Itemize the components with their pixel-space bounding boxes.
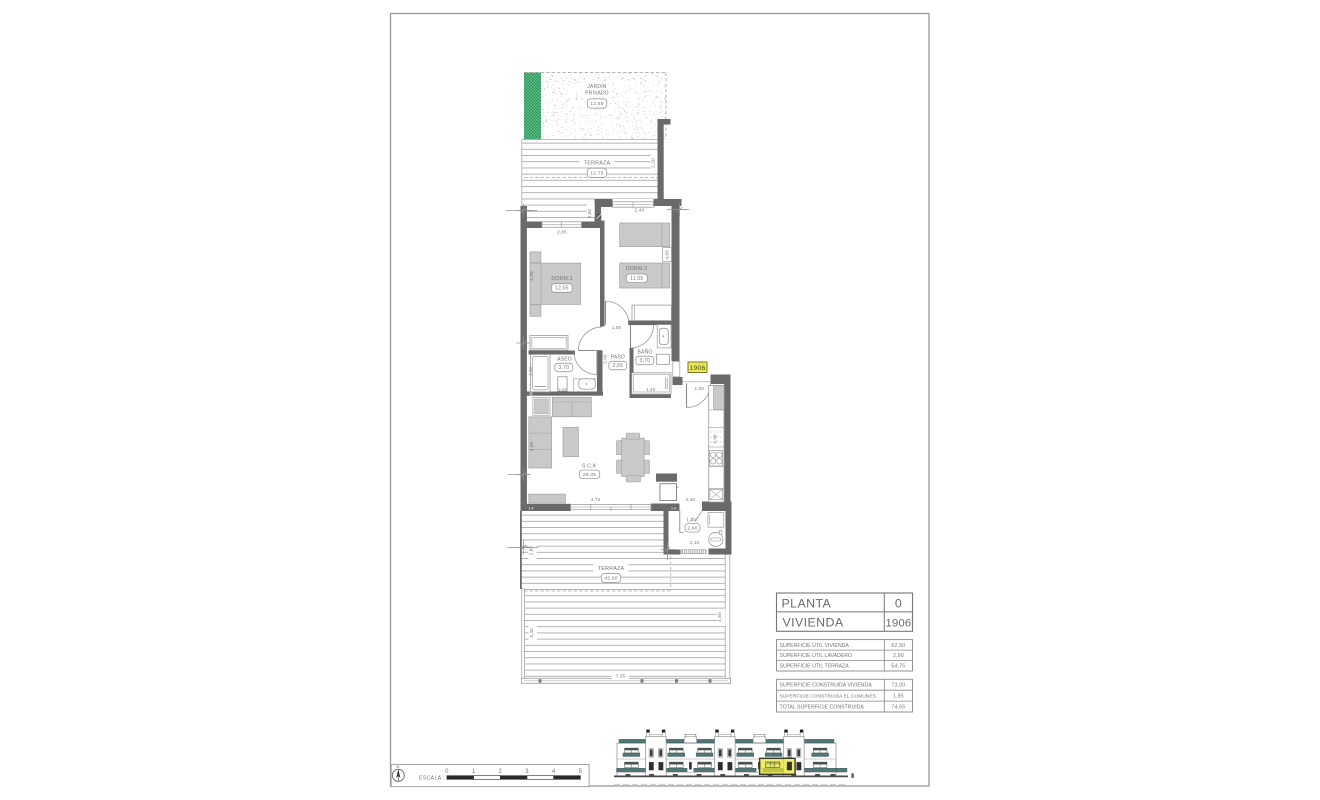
svg-text:1: 1 — [472, 769, 476, 775]
svg-text:BAÑO: BAÑO — [638, 348, 653, 355]
svg-text:SUPERFICIE ÚTIL VIVIENDA: SUPERFICIE ÚTIL VIVIENDA — [780, 642, 850, 649]
svg-text:74,65: 74,65 — [891, 704, 905, 710]
svg-text:TERRAZA: TERRAZA — [584, 161, 611, 167]
svg-text:2,20: 2,20 — [651, 158, 656, 168]
svg-text:2,40: 2,40 — [686, 497, 696, 502]
svg-text:N: N — [397, 765, 400, 769]
svg-text:1,45: 1,45 — [646, 387, 656, 392]
svg-text:SUPERFICIE ÚTIL LAVADERO: SUPERFICIE ÚTIL LAVADERO — [780, 652, 853, 659]
svg-text:4,75: 4,75 — [591, 497, 601, 502]
svg-text:1.4: 1.4 — [671, 507, 676, 511]
svg-text:42,00: 42,00 — [604, 576, 617, 582]
svg-text:4,60: 4,60 — [717, 612, 722, 622]
svg-text:SUPERFICIE CONSTRUIDA VIVIENDA: SUPERFICIE CONSTRUIDA VIVIENDA — [780, 683, 873, 689]
svg-text:0: 0 — [895, 596, 902, 610]
svg-text:3,40: 3,40 — [529, 628, 534, 638]
svg-text:2,65: 2,65 — [557, 230, 567, 235]
svg-text:TOTAL SUPERFICIE CONSTRUIDA: TOTAL SUPERFICIE CONSTRUIDA — [780, 704, 865, 710]
svg-text:1,85: 1,85 — [893, 693, 904, 699]
svg-text:3: 3 — [525, 769, 529, 775]
svg-text:VIVIENDA: VIVIENDA — [783, 616, 844, 630]
svg-text:DORM.1: DORM.1 — [551, 276, 572, 282]
svg-text:PLANTA: PLANTA — [782, 596, 832, 610]
svg-text:2,65: 2,65 — [613, 363, 624, 369]
svg-text:TERRAZA: TERRAZA — [598, 566, 625, 572]
svg-text:2,40: 2,40 — [635, 208, 645, 213]
svg-text:12,59: 12,59 — [590, 101, 603, 107]
svg-text:54,75: 54,75 — [891, 664, 905, 670]
svg-text:PASO: PASO — [611, 354, 625, 360]
svg-text:2,90: 2,90 — [893, 653, 904, 659]
svg-text:4,05: 4,05 — [665, 250, 670, 260]
svg-text:S.C.K: S.C.K — [582, 463, 597, 469]
svg-text:2,60: 2,60 — [603, 354, 608, 364]
svg-text:12,05: 12,05 — [555, 286, 569, 292]
svg-text:0,00: 0,00 — [587, 208, 592, 218]
svg-text:4,40: 4,40 — [713, 434, 718, 444]
svg-text:7,35: 7,35 — [616, 674, 626, 679]
svg-text:SUPERFICIE ÚTIL TERRAZA: SUPERFICIE ÚTIL TERRAZA — [780, 663, 850, 670]
svg-text:11,05: 11,05 — [630, 276, 643, 282]
svg-text:JARDÍN: JARDÍN — [587, 83, 606, 90]
svg-text:1906: 1906 — [885, 618, 911, 630]
svg-text:12,75: 12,75 — [590, 170, 603, 176]
svg-text:ASEO: ASEO — [557, 356, 572, 362]
svg-text:2: 2 — [499, 769, 503, 775]
svg-text:2,10: 2,10 — [690, 540, 700, 545]
svg-text:5: 5 — [579, 769, 583, 775]
svg-text:0: 0 — [445, 769, 449, 775]
svg-text:29,35: 29,35 — [583, 472, 596, 478]
svg-text:1,00: 1,00 — [612, 325, 622, 330]
svg-text:DORM.2: DORM.2 — [626, 266, 647, 272]
svg-text:1,40: 1,40 — [528, 367, 533, 376]
svg-text:1,05: 1,05 — [695, 386, 705, 391]
svg-text:73,00: 73,00 — [891, 683, 905, 689]
svg-text:ESCALA :: ESCALA : — [419, 775, 445, 781]
svg-text:SUPERFICIE CONSTRUIDA EL.COMUN: SUPERFICIE CONSTRUIDA EL.COMUNES — [780, 693, 877, 699]
svg-text:2,85: 2,85 — [529, 545, 534, 555]
svg-text:62,50: 62,50 — [891, 643, 905, 649]
svg-text:3,70: 3,70 — [640, 358, 651, 364]
svg-text:4,85: 4,85 — [529, 271, 534, 281]
svg-text:3,70: 3,70 — [559, 365, 570, 371]
svg-text:1.4: 1.4 — [529, 507, 534, 511]
svg-text:LAV.: LAV. — [687, 517, 698, 523]
svg-text:4,00: 4,00 — [529, 441, 534, 451]
svg-text:PRIVADO: PRIVADO — [585, 91, 609, 97]
svg-text:4: 4 — [552, 769, 556, 775]
svg-text:2,65: 2,65 — [558, 387, 568, 392]
svg-text:2,90: 2,90 — [687, 525, 697, 531]
svg-text:1906: 1906 — [690, 365, 706, 372]
